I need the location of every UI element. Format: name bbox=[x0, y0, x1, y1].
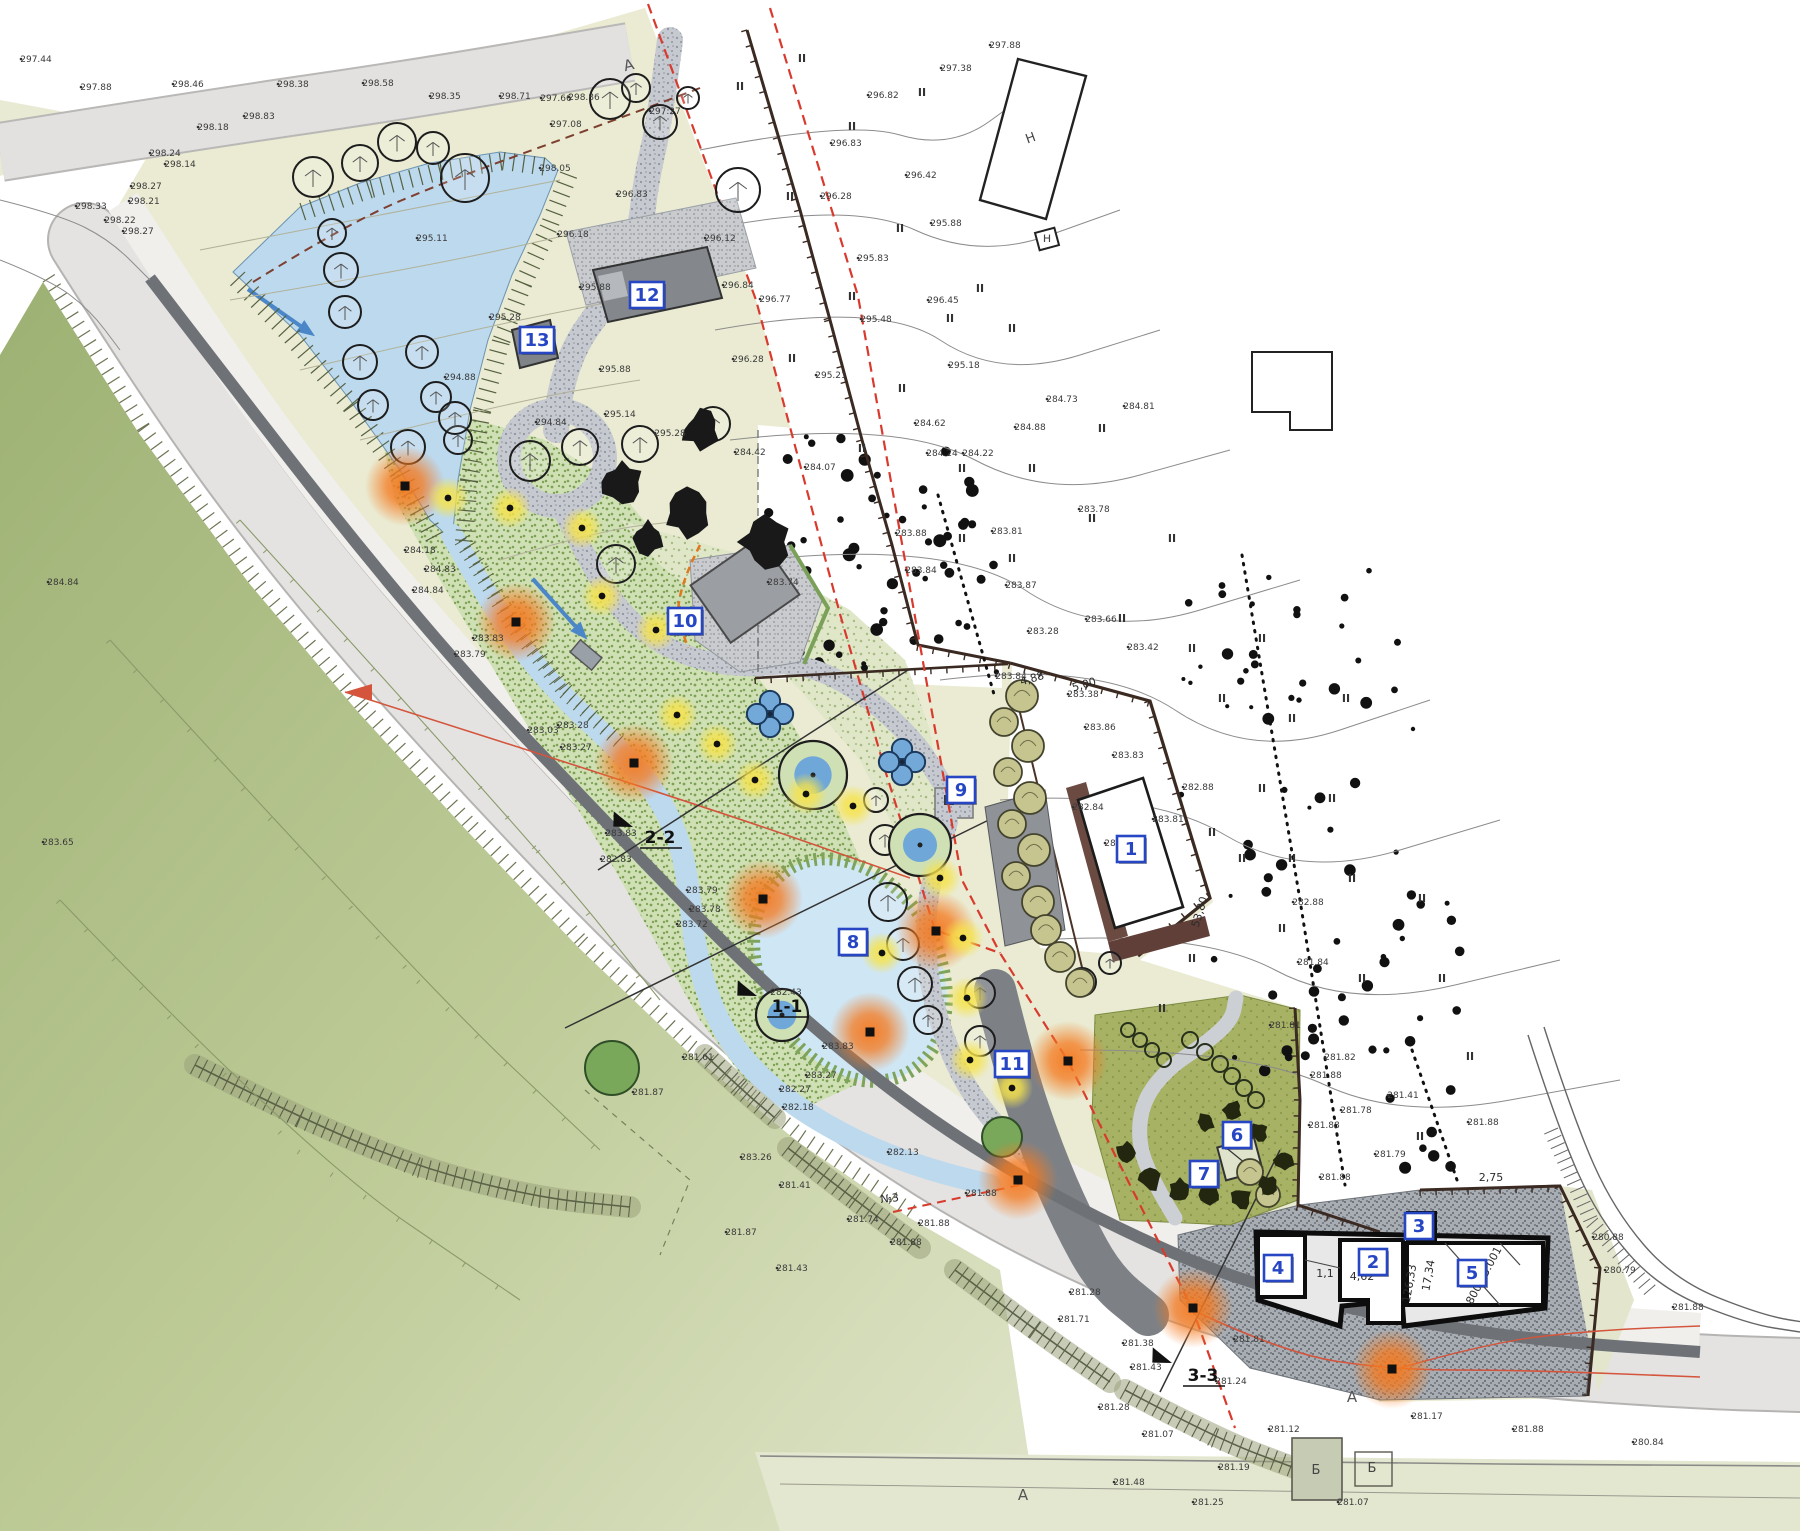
elevation-label: 281.88 bbox=[1512, 1425, 1544, 1435]
elevation-label: 281.43 bbox=[776, 1264, 808, 1274]
elevation-label: 283.27 bbox=[805, 1071, 837, 1081]
elevation-label: 281.07 bbox=[1337, 1498, 1369, 1508]
elevation-label: 284.22 bbox=[962, 449, 994, 459]
gardenlamp-yellow-icon bbox=[832, 785, 874, 827]
elevation-label: 298.83 bbox=[243, 112, 275, 122]
elevation-label: 298.38 bbox=[277, 80, 309, 90]
olive-tree-icon bbox=[1018, 834, 1050, 866]
callout-number: 11 bbox=[999, 1054, 1024, 1075]
elevation-label: 296.83 bbox=[616, 190, 648, 200]
elevation-label: 296.45 bbox=[927, 296, 959, 306]
elevation-label: 298.33 bbox=[75, 202, 107, 212]
elevation-label: 282.88 bbox=[1292, 898, 1324, 908]
callout-5: 5 bbox=[1458, 1260, 1488, 1288]
olive-tree-icon bbox=[990, 708, 1018, 736]
dimension-label: 1,1 bbox=[1316, 1267, 1334, 1280]
tree-icon bbox=[1099, 952, 1121, 974]
elevation-label: 283.87 bbox=[1005, 581, 1037, 591]
tree-icon bbox=[898, 967, 932, 1001]
vegetation-symbol: II bbox=[1348, 872, 1356, 885]
elevation-label: 295.88 bbox=[579, 283, 611, 293]
callout-number: 7 bbox=[1198, 1164, 1211, 1185]
callout-number: 1 bbox=[1125, 839, 1138, 860]
elevation-label: 284.42 bbox=[734, 448, 766, 458]
vegetation-symbol: II bbox=[1438, 972, 1446, 985]
tree-icon bbox=[343, 345, 377, 379]
elevation-label: 284.88 bbox=[1014, 423, 1046, 433]
vegetation-symbol: II bbox=[1208, 826, 1216, 839]
vegetation-symbol: II bbox=[1218, 692, 1226, 705]
gardenlamp-yellow-icon bbox=[946, 977, 988, 1019]
streetlamp-orange-icon bbox=[978, 1140, 1058, 1220]
elevation-label: 282.27 bbox=[779, 1085, 811, 1095]
elevation-label: 298.71 bbox=[499, 92, 531, 102]
elevation-label: 283.78 bbox=[689, 905, 721, 915]
elevation-label: 280.84 bbox=[1632, 1438, 1664, 1448]
elevation-label: 281.38 bbox=[1122, 1339, 1154, 1349]
vegetation-symbol: II bbox=[1466, 1050, 1474, 1063]
tree-icon bbox=[441, 154, 489, 202]
callout-number: 13 bbox=[524, 330, 549, 351]
olive-tree-icon bbox=[1066, 969, 1094, 997]
elevation-label: 283.74 bbox=[767, 578, 799, 588]
gardenlamp-yellow-icon bbox=[581, 575, 623, 617]
olive-tree-icon bbox=[994, 758, 1022, 786]
callout-9: 9 bbox=[947, 777, 977, 805]
site-plan-canvas: 297.44297.88298.46298.38298.58298.35298.… bbox=[0, 0, 1800, 1531]
elevation-label: 295.83 bbox=[857, 254, 889, 264]
tree-icon bbox=[677, 87, 699, 109]
elevation-label: 282.84 bbox=[1072, 803, 1104, 813]
elevation-label: 283.66 bbox=[1085, 615, 1117, 625]
elevation-label: 297.88 bbox=[80, 83, 112, 93]
vegetation-symbol: II bbox=[1188, 952, 1196, 965]
elevation-label: 296.77 bbox=[759, 295, 791, 305]
elevation-label: 284.83 bbox=[424, 565, 456, 575]
streetlamp-orange-icon bbox=[476, 582, 556, 662]
elevation-label: 297.38 bbox=[940, 64, 972, 74]
elevation-label: 281.88 bbox=[918, 1219, 950, 1229]
callout-10: 10 bbox=[668, 608, 704, 636]
section-label: 3-3 bbox=[1188, 1366, 1219, 1386]
elevation-label: 298.14 bbox=[164, 160, 196, 170]
elevation-label: 283.28 bbox=[1027, 627, 1059, 637]
callout-12: 12 bbox=[630, 282, 666, 310]
vegetation-symbol: II bbox=[858, 442, 866, 455]
callout-number: 10 bbox=[672, 611, 697, 632]
elevation-label: 281.88 bbox=[1467, 1118, 1499, 1128]
section-label: 1-1 bbox=[772, 997, 803, 1017]
elevation-label: 298.18 bbox=[197, 123, 229, 133]
gardenlamp-yellow-icon bbox=[696, 723, 738, 765]
elevation-label: 282.83 bbox=[600, 855, 632, 865]
elevation-label: 283.86 bbox=[1084, 723, 1116, 733]
elevation-label: 281.17 bbox=[1411, 1412, 1443, 1422]
callout-number: 12 bbox=[634, 285, 659, 306]
callout-number: 4 bbox=[1272, 1258, 1285, 1279]
olive-tree-icon bbox=[1022, 886, 1054, 918]
elevation-label: 296.83 bbox=[830, 139, 862, 149]
elevation-label: 295.48 bbox=[860, 315, 892, 325]
elevation-label: 281.79 bbox=[1374, 1150, 1406, 1160]
olive-tree-icon bbox=[1031, 915, 1061, 945]
elevation-label: 281.48 bbox=[1113, 1478, 1145, 1488]
callout-number: 3 bbox=[1413, 1216, 1426, 1237]
vegetation-symbol: II bbox=[1342, 692, 1350, 705]
vegetation-symbol: II bbox=[1168, 532, 1176, 545]
vegetation-symbol: II bbox=[1416, 1130, 1424, 1143]
gardenlamp-yellow-icon bbox=[427, 477, 469, 519]
streetlamp-orange-icon bbox=[1352, 1329, 1432, 1409]
elevation-label: 298.58 bbox=[362, 79, 394, 89]
elevation-label: 283.28 bbox=[557, 721, 589, 731]
elevation-label: 298.05 bbox=[539, 164, 571, 174]
road-letter: A bbox=[1018, 1486, 1029, 1504]
elevation-label: 283.72 bbox=[676, 920, 708, 930]
elevation-label: 283.42 bbox=[1127, 643, 1159, 653]
section-label: 2-2 bbox=[645, 828, 676, 848]
olive-tree-icon bbox=[1237, 1159, 1263, 1185]
elevation-label: 281.41 bbox=[779, 1181, 811, 1191]
elevation-label: 284.62 bbox=[914, 419, 946, 429]
olive-tree-icon bbox=[998, 810, 1026, 838]
vegetation-symbol: II bbox=[848, 120, 856, 133]
callout-number: 9 bbox=[955, 780, 968, 801]
tree-icon bbox=[293, 157, 333, 197]
vegetation-symbol: II bbox=[798, 52, 806, 65]
vegetation-symbol: II bbox=[786, 190, 794, 203]
road-letter: A bbox=[1347, 1388, 1358, 1406]
streetlamp-orange-icon bbox=[830, 992, 910, 1072]
vegetation-symbol: II bbox=[1288, 712, 1296, 725]
gardenlamp-yellow-icon bbox=[785, 773, 827, 815]
elevation-label: 284.73 bbox=[1046, 395, 1078, 405]
elevation-label: 283.65 bbox=[42, 838, 74, 848]
tree-icon bbox=[406, 336, 438, 368]
elevation-label: 295.88 bbox=[930, 219, 962, 229]
olive-tree-icon bbox=[1002, 862, 1030, 890]
vegetation-symbol: II bbox=[1118, 612, 1126, 625]
elevation-label: 298.35 bbox=[429, 92, 461, 102]
gardenlamp-yellow-icon bbox=[561, 507, 603, 549]
elevation-label: 283.83 bbox=[822, 1042, 854, 1052]
elevation-label: 295.14 bbox=[604, 410, 636, 420]
gardenlamp-yellow-icon bbox=[656, 694, 698, 736]
vegetation-symbol: II bbox=[1328, 792, 1336, 805]
callout-number: 2 bbox=[1367, 1252, 1380, 1273]
elevation-label: 295.88 bbox=[599, 365, 631, 375]
gardenlamp-yellow-icon bbox=[734, 759, 776, 801]
vegetation-symbol: II bbox=[1258, 782, 1266, 795]
tree-icon bbox=[716, 168, 760, 212]
elevation-label: 296.82 bbox=[867, 91, 899, 101]
elevation-label: 281.82 bbox=[1324, 1053, 1356, 1063]
olive-tree-icon bbox=[1012, 730, 1044, 762]
vegetation-symbol: II bbox=[1158, 1002, 1166, 1015]
elevation-label: 281.28 bbox=[1098, 1403, 1130, 1413]
vegetation-symbol: II bbox=[976, 282, 984, 295]
elevation-label: 281.71 bbox=[1058, 1315, 1090, 1325]
vegetation-symbol: II bbox=[1188, 642, 1196, 655]
tree-icon bbox=[562, 429, 598, 465]
elevation-label: 281.88 bbox=[1308, 1121, 1340, 1131]
elevation-label: 281.84 bbox=[1297, 958, 1329, 968]
elevation-label: 284.84 bbox=[412, 586, 444, 596]
elevation-label: 295.11 bbox=[416, 234, 448, 244]
callout-7: 7 bbox=[1190, 1161, 1220, 1189]
elevation-label: 298.27 bbox=[130, 182, 162, 192]
elevation-label: 295.28 bbox=[654, 429, 686, 439]
elevation-label: 294.84 bbox=[535, 418, 567, 428]
gardenlamp-yellow-icon bbox=[949, 1039, 991, 1081]
elevation-label: 284.81 bbox=[1123, 402, 1155, 412]
building-letter: Б bbox=[1312, 1463, 1321, 1478]
building-letter: Б bbox=[1368, 1461, 1377, 1476]
elevation-label: 280.88 bbox=[1592, 1233, 1624, 1243]
olive-tree-icon bbox=[1014, 782, 1046, 814]
elevation-label: 297.44 bbox=[20, 55, 52, 65]
elevation-label: 298.24 bbox=[149, 149, 181, 159]
elevation-label: 281.87 bbox=[725, 1228, 757, 1238]
streetlamp-orange-icon bbox=[723, 859, 803, 939]
vegetation-symbol: II bbox=[848, 290, 856, 303]
elevation-label: 281.28 bbox=[1069, 1288, 1101, 1298]
callout-2: 2 bbox=[1359, 1249, 1389, 1277]
elevation-label: 284.07 bbox=[804, 463, 836, 473]
elevation-label: 284.24 bbox=[926, 449, 958, 459]
elevation-label: 297.88 bbox=[989, 41, 1021, 51]
vegetation-symbol: II bbox=[918, 86, 926, 99]
vegetation-symbol: II bbox=[958, 462, 966, 475]
tree-icon bbox=[324, 253, 358, 287]
elevation-label: 283.83 bbox=[605, 829, 637, 839]
gardenlamp-yellow-icon bbox=[919, 857, 961, 899]
vegetation-symbol: II bbox=[1028, 462, 1036, 475]
elevation-label: 283.79 bbox=[454, 650, 486, 660]
elevation-label: 283.79 bbox=[686, 886, 718, 896]
elevation-label: 298.86 bbox=[568, 93, 600, 103]
elevation-label: 297.66 bbox=[540, 94, 572, 104]
vegetation-symbol: II bbox=[946, 312, 954, 325]
streetlamp-orange-icon bbox=[1153, 1268, 1233, 1348]
callout-8: 8 bbox=[839, 929, 869, 957]
vegetation-symbol: II bbox=[1008, 552, 1016, 565]
elevation-label: 296.28 bbox=[732, 355, 764, 365]
elevation-label: 282.18 bbox=[782, 1103, 814, 1113]
tree-icon bbox=[439, 402, 471, 434]
vegetation-symbol: II bbox=[1258, 632, 1266, 645]
elevation-label: 281.07 bbox=[1142, 1430, 1174, 1440]
elevation-label: 282.13 bbox=[887, 1148, 919, 1158]
elevation-label: 298.21 bbox=[128, 197, 160, 207]
elevation-label: 297.08 bbox=[550, 120, 582, 130]
callout-3: 3 bbox=[1405, 1213, 1435, 1241]
elevation-label: 282.88 bbox=[1182, 783, 1214, 793]
elevation-label: 281.88 bbox=[890, 1238, 922, 1248]
elevation-label: 295.28 bbox=[489, 313, 521, 323]
vegetation-symbol: II bbox=[1278, 922, 1286, 935]
elevation-label: 283.81 bbox=[1152, 815, 1184, 825]
gardenlamp-yellow-icon bbox=[489, 487, 531, 529]
vegetation-symbol: II bbox=[898, 382, 906, 395]
tree-icon bbox=[914, 1006, 942, 1034]
building-letter: н bbox=[1043, 231, 1052, 246]
vegetation-symbol: II bbox=[1288, 852, 1296, 865]
callout-6: 6 bbox=[1223, 1122, 1253, 1150]
elevation-label: 296.84 bbox=[722, 281, 754, 291]
elevation-label: 297.27 bbox=[649, 107, 681, 117]
elevation-label: 281.88 bbox=[1310, 1071, 1342, 1081]
tree-icon bbox=[358, 390, 388, 420]
streetlamp-orange-icon bbox=[594, 723, 674, 803]
callout-4: 4 bbox=[1264, 1255, 1294, 1283]
vegetation-symbol: II bbox=[1418, 892, 1426, 905]
tree-icon bbox=[622, 74, 650, 102]
elevation-label: 283.88 bbox=[895, 529, 927, 539]
elevation-label: 281.87 bbox=[632, 1088, 664, 1098]
elevation-label: 281.81 bbox=[1269, 1021, 1301, 1031]
elevation-label: 281.88 bbox=[1319, 1173, 1351, 1183]
elevation-label: 283.27 bbox=[560, 743, 592, 753]
elevation-label: 296.28 bbox=[820, 192, 852, 202]
tree-icon bbox=[622, 426, 658, 462]
elevation-label: 296.18 bbox=[557, 230, 589, 240]
elevation-label: 281.25 bbox=[1192, 1498, 1224, 1508]
green-tree-icon bbox=[585, 1041, 639, 1095]
elevation-label: 281.78 bbox=[1340, 1106, 1372, 1116]
callout-number: 8 bbox=[847, 932, 860, 953]
vegetation-symbol: II bbox=[1358, 972, 1366, 985]
elevation-label: 281.41 bbox=[1387, 1091, 1419, 1101]
vegetation-symbol: II bbox=[1098, 422, 1106, 435]
dimension-label: 2,75 bbox=[1479, 1171, 1504, 1184]
tree-icon bbox=[510, 441, 550, 481]
elevation-label: 295.18 bbox=[948, 361, 980, 371]
elevation-label: 284.18 bbox=[404, 546, 436, 556]
elevation-label: 296.12 bbox=[704, 234, 736, 244]
tree-icon bbox=[318, 219, 346, 247]
vegetation-symbol: II bbox=[958, 532, 966, 545]
elevation-label: 283.83 bbox=[1112, 751, 1144, 761]
streetlamp-orange-icon bbox=[1028, 1021, 1108, 1101]
vegetation-symbol: II bbox=[736, 80, 744, 93]
tree-icon bbox=[342, 145, 378, 181]
elevation-label: 281.43 bbox=[1130, 1363, 1162, 1373]
elevation-label: 294.88 bbox=[444, 373, 476, 383]
elevation-label: 298.22 bbox=[104, 216, 136, 226]
site-plan-drawing: 297.44297.88298.46298.38298.58298.35298.… bbox=[0, 0, 1800, 1531]
elevation-label: 281.88 bbox=[1672, 1303, 1704, 1313]
callout-13: 13 bbox=[520, 327, 556, 355]
elevation-label: 283.84 bbox=[905, 566, 937, 576]
elevation-label: 283.81 bbox=[991, 527, 1023, 537]
elevation-label: 296.42 bbox=[905, 171, 937, 181]
callout-1: 1 bbox=[1117, 836, 1147, 864]
dimension-label: №3 bbox=[880, 1191, 900, 1206]
elevation-label: 281.19 bbox=[1218, 1463, 1250, 1473]
elevation-label: 281.12 bbox=[1268, 1425, 1300, 1435]
olive-tree-icon bbox=[1045, 942, 1075, 972]
elevation-label: 283.83 bbox=[472, 634, 504, 644]
elevation-label: 280.79 bbox=[1604, 1266, 1636, 1276]
callout-11: 11 bbox=[995, 1051, 1031, 1079]
vegetation-symbol: II bbox=[1008, 322, 1016, 335]
vegetation-symbol: II bbox=[1088, 512, 1096, 525]
elevation-label: 281.61 bbox=[682, 1053, 714, 1063]
callout-number: 5 bbox=[1466, 1263, 1479, 1284]
callout-number: 6 bbox=[1231, 1125, 1244, 1146]
elevation-label: 283.26 bbox=[740, 1153, 772, 1163]
tree-icon bbox=[378, 123, 416, 161]
elevation-label: 283.03 bbox=[527, 726, 559, 736]
vegetation-symbol: II bbox=[1238, 852, 1246, 865]
elevation-label: 298.27 bbox=[122, 227, 154, 237]
elevation-label: 281.81 bbox=[1233, 1335, 1265, 1345]
tree-icon bbox=[329, 296, 361, 328]
elevation-label: 284.84 bbox=[47, 578, 79, 588]
vegetation-symbol: II bbox=[788, 352, 796, 365]
gardenlamp-yellow-icon bbox=[942, 917, 984, 959]
elevation-label: 295.21 bbox=[815, 371, 847, 381]
elevation-label: 281.88 bbox=[965, 1189, 997, 1199]
tree-icon bbox=[417, 132, 449, 164]
elevation-label: 298.46 bbox=[172, 80, 204, 90]
elevation-label: 281.74 bbox=[847, 1215, 879, 1225]
vegetation-symbol: II bbox=[896, 222, 904, 235]
